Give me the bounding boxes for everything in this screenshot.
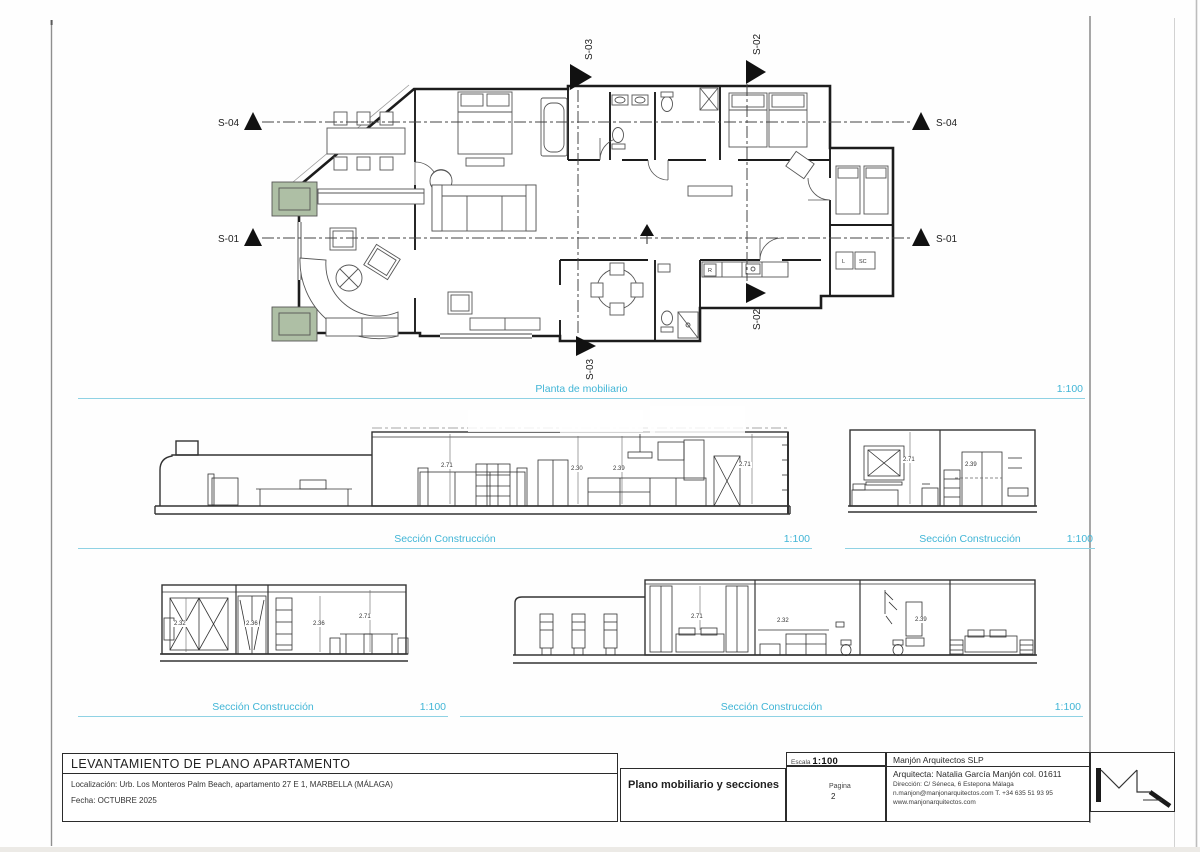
marker-label-s01-right: S-01 [936,234,958,245]
marker-label-s02-top: S-02 [752,33,763,55]
project-date: Fecha: OCTUBRE 2025 [63,796,617,805]
plan-label-r: R [708,268,712,274]
caption-section-a-scale: 1:100 [784,533,810,545]
title-block-architect-cell: Manjón Arquitectos SLP Arquitecta: Natal… [886,752,1090,822]
title-block-drawing-title-cell: Plano mobiliario y secciones [620,768,786,822]
caption-section-b-label: Sección Construcción [845,533,1095,545]
caption-plan: Planta de mobiliario 1:100 [78,382,1085,399]
dim-label: 2.32 [173,621,187,627]
dim-label: 2.71 [902,457,916,463]
firm-name: Manjón Arquitectos SLP [887,753,1089,767]
caption-section-b-scale: 1:100 [1067,533,1093,545]
title-block-page-cell: Pagina 2 [786,766,886,822]
marker-label-s04-left: S-04 [218,118,240,129]
project-location: Localización: Urb. Los Monteros Palm Bea… [63,780,617,789]
firm-contact: n.manjon@manjonarquitectos.com T. +34 63… [887,788,1089,797]
dim-label: 2.39 [914,617,928,623]
caption-section-d: Sección Construcción 1:100 [460,700,1083,717]
caption-section-a-label: Sección Construcción [78,533,812,545]
drawing-title: Plano mobiliario y secciones [621,769,785,791]
caption-plan-label: Planta de mobiliario [78,383,1085,395]
section-a-drawing [155,428,790,514]
marker-label-s03-top: S-03 [584,38,595,60]
title-block-scale-cell: Escala 1:100 [786,752,886,766]
marker-label-s03-bottom: S-03 [585,358,596,380]
caption-section-c: Sección Construcción 1:100 [78,700,448,717]
dim-label: 2.39 [964,462,978,468]
dim-label: 2.36 [245,621,259,627]
plan-label-l: L [842,259,845,265]
caption-plan-scale: 1:100 [1057,383,1083,395]
section-c-drawing [160,585,408,661]
caption-section-b: Sección Construcción 1:100 [845,532,1095,549]
page-number: 2 [787,790,885,801]
floor-plan-drawing: S-04 S-01 S-04 S-01 S-03 S-02 S-03 S-02 … [218,33,958,380]
dim-label: 2.36 [312,621,326,627]
dim-label: 2.71 [738,462,752,468]
caption-section-d-scale: 1:100 [1055,701,1081,713]
drawing-sheet: S-04 S-01 S-04 S-01 S-03 S-02 S-03 S-02 … [0,0,1200,852]
caption-section-a: Sección Construcción 1:100 [78,532,812,549]
marker-label-s01-left: S-01 [218,234,240,245]
section-d-drawing [513,580,1037,663]
caption-section-c-label: Sección Construcción [78,701,448,713]
dim-label: 2.71 [440,463,454,469]
dim-label: 2.39 [612,466,626,472]
scanned-drawing-page: { "captions": { "plan": {"label": "Plant… [0,0,1200,852]
project-title: LEVANTAMIENTO DE PLANO APARTAMENTO [63,754,617,774]
firm-address: Dirección: C/ Séneca, 6 Estepona Málaga [887,779,1089,788]
title-block-logo-cell [1090,752,1175,812]
architect-name: Arquitecta: Natalia García Manjón col. 0… [887,767,1089,779]
title-block-project: LEVANTAMIENTO DE PLANO APARTAMENTO Local… [62,753,618,822]
scale-label: Escala [791,759,811,766]
dim-label: 2.71 [690,614,704,620]
caption-section-d-label: Sección Construcción [460,701,1083,713]
section-b-drawing [848,430,1037,512]
marker-label-s02-bottom: S-02 [752,308,763,330]
scan-watermark [468,406,745,434]
page-label: Pagina [787,767,885,790]
dim-label: 2.32 [776,618,790,624]
dim-label: 2.71 [358,614,372,620]
caption-section-c-scale: 1:100 [420,701,446,713]
plan-label-sc: SC [859,259,867,265]
firm-website: www.manjonarquitectos.com [887,797,1089,806]
marker-label-s04-right: S-04 [936,118,958,129]
dim-label: 2.30 [570,466,584,472]
